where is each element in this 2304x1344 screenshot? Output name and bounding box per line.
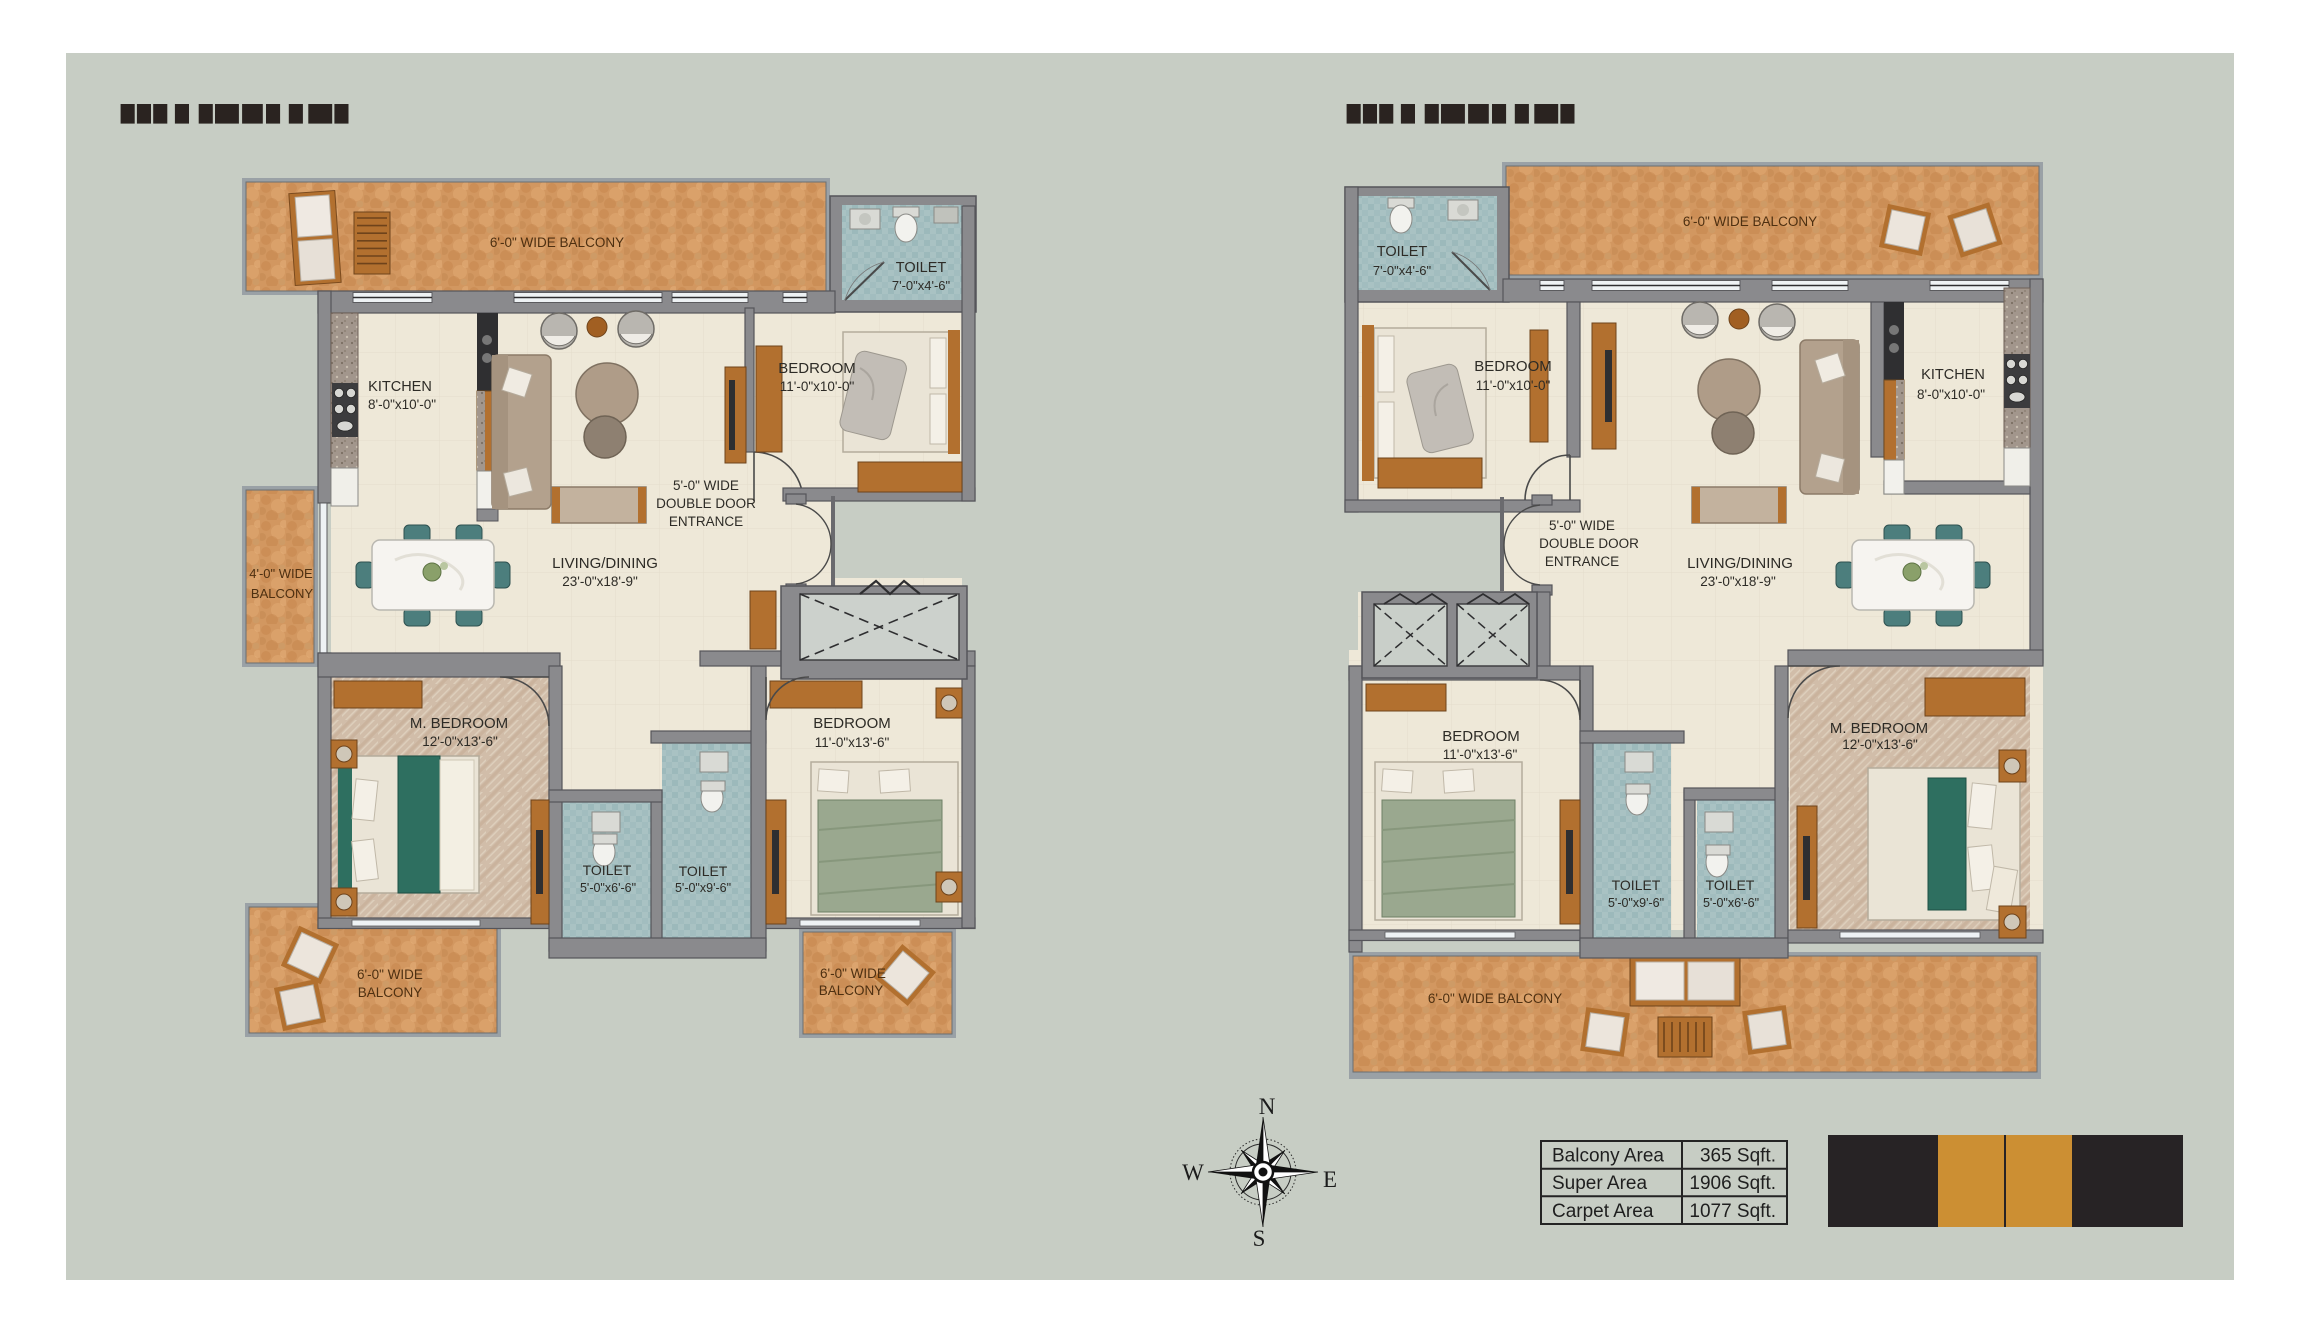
svg-text:6'-0" WIDE: 6'-0" WIDE <box>357 967 423 982</box>
svg-text:M. BEDROOM: M. BEDROOM <box>410 715 508 732</box>
svg-text:4'-0" WIDE: 4'-0" WIDE <box>249 566 313 581</box>
svg-text:5'-0"x6'-6": 5'-0"x6'-6" <box>1703 896 1759 910</box>
svg-text:11'-0"x13'-6": 11'-0"x13'-6" <box>815 735 890 750</box>
svg-text:BEDROOM: BEDROOM <box>1442 728 1520 745</box>
svg-text:DOUBLE DOOR: DOUBLE DOOR <box>1539 536 1639 551</box>
svg-text:8'-0"x10'-0": 8'-0"x10'-0" <box>1917 387 1985 402</box>
svg-text:KITCHEN: KITCHEN <box>1921 367 1985 383</box>
svg-text:TOILET: TOILET <box>1706 877 1755 893</box>
svg-text:TOILET: TOILET <box>1377 244 1428 260</box>
svg-text:BALCONY: BALCONY <box>251 586 313 601</box>
svg-text:11'-0"x13'-6": 11'-0"x13'-6" <box>1443 747 1518 762</box>
svg-text:BALCONY: BALCONY <box>358 985 423 1000</box>
svg-text:DOUBLE DOOR: DOUBLE DOOR <box>656 496 756 511</box>
svg-text:TOILET: TOILET <box>896 260 947 276</box>
svg-text:5'-0"x9'-6": 5'-0"x9'-6" <box>1608 896 1664 910</box>
svg-text:11'-0"x10'-0": 11'-0"x10'-0" <box>780 379 855 394</box>
svg-text:5'-0" WIDE: 5'-0" WIDE <box>673 478 739 493</box>
svg-text:LIVING/DINING: LIVING/DINING <box>552 555 658 572</box>
svg-text:S: S <box>1253 1226 1266 1251</box>
svg-text:1906 Sqft.: 1906 Sqft. <box>1689 1173 1776 1194</box>
svg-text:6'-0" WIDE BALCONY: 6'-0" WIDE BALCONY <box>1428 991 1562 1006</box>
svg-text:23'-0"x18'-9": 23'-0"x18'-9" <box>1700 574 1776 589</box>
svg-text:1077 Sqft.: 1077 Sqft. <box>1689 1201 1776 1222</box>
svg-text:5'-0"x9'-6": 5'-0"x9'-6" <box>675 881 731 895</box>
svg-text:Super Area: Super Area <box>1552 1173 1647 1194</box>
svg-text:TOILET: TOILET <box>1612 877 1661 893</box>
svg-text:BEDROOM: BEDROOM <box>813 715 891 732</box>
svg-text:LIVING/DINING: LIVING/DINING <box>1687 555 1793 572</box>
svg-text:7'-0"x4'-6": 7'-0"x4'-6" <box>1373 263 1432 278</box>
svg-text:ENTRANCE: ENTRANCE <box>1545 554 1619 569</box>
svg-text:5'-0" WIDE: 5'-0" WIDE <box>1549 518 1615 533</box>
svg-text:W: W <box>1182 1160 1204 1185</box>
svg-text:23'-0"x18'-9": 23'-0"x18'-9" <box>562 574 638 589</box>
svg-text:ENTRANCE: ENTRANCE <box>669 514 743 529</box>
svg-text:E: E <box>1323 1167 1337 1192</box>
svg-text:BEDROOM: BEDROOM <box>1474 358 1552 375</box>
svg-text:KITCHEN: KITCHEN <box>368 379 432 395</box>
svg-text:Balcony Area: Balcony Area <box>1552 1146 1664 1167</box>
svg-text:6'-0" WIDE: 6'-0" WIDE <box>820 966 886 981</box>
svg-text:Carpet Area: Carpet Area <box>1552 1201 1654 1222</box>
svg-text:12'-0"x13'-6": 12'-0"x13'-6" <box>422 734 498 749</box>
svg-text:N: N <box>1259 1094 1276 1119</box>
svg-text:5'-0"x6'-6": 5'-0"x6'-6" <box>580 881 636 895</box>
svg-text:TOILET: TOILET <box>583 862 632 878</box>
svg-text:M. BEDROOM: M. BEDROOM <box>1830 720 1928 737</box>
svg-text:BEDROOM: BEDROOM <box>778 360 856 377</box>
svg-text:8'-0"x10'-0": 8'-0"x10'-0" <box>368 397 436 412</box>
svg-text:6'-0" WIDE BALCONY: 6'-0" WIDE BALCONY <box>490 235 624 250</box>
svg-text:TOILET: TOILET <box>679 863 728 879</box>
svg-text:6'-0" WIDE BALCONY: 6'-0" WIDE BALCONY <box>1683 214 1817 229</box>
svg-text:12'-0"x13'-6": 12'-0"x13'-6" <box>1842 737 1918 752</box>
svg-text:11'-0"x10'-0": 11'-0"x10'-0" <box>1476 378 1551 393</box>
svg-text:7'-0"x4'-6": 7'-0"x4'-6" <box>892 278 951 293</box>
svg-text:365 Sqft.: 365 Sqft. <box>1700 1146 1776 1167</box>
svg-text:BALCONY: BALCONY <box>819 983 884 998</box>
